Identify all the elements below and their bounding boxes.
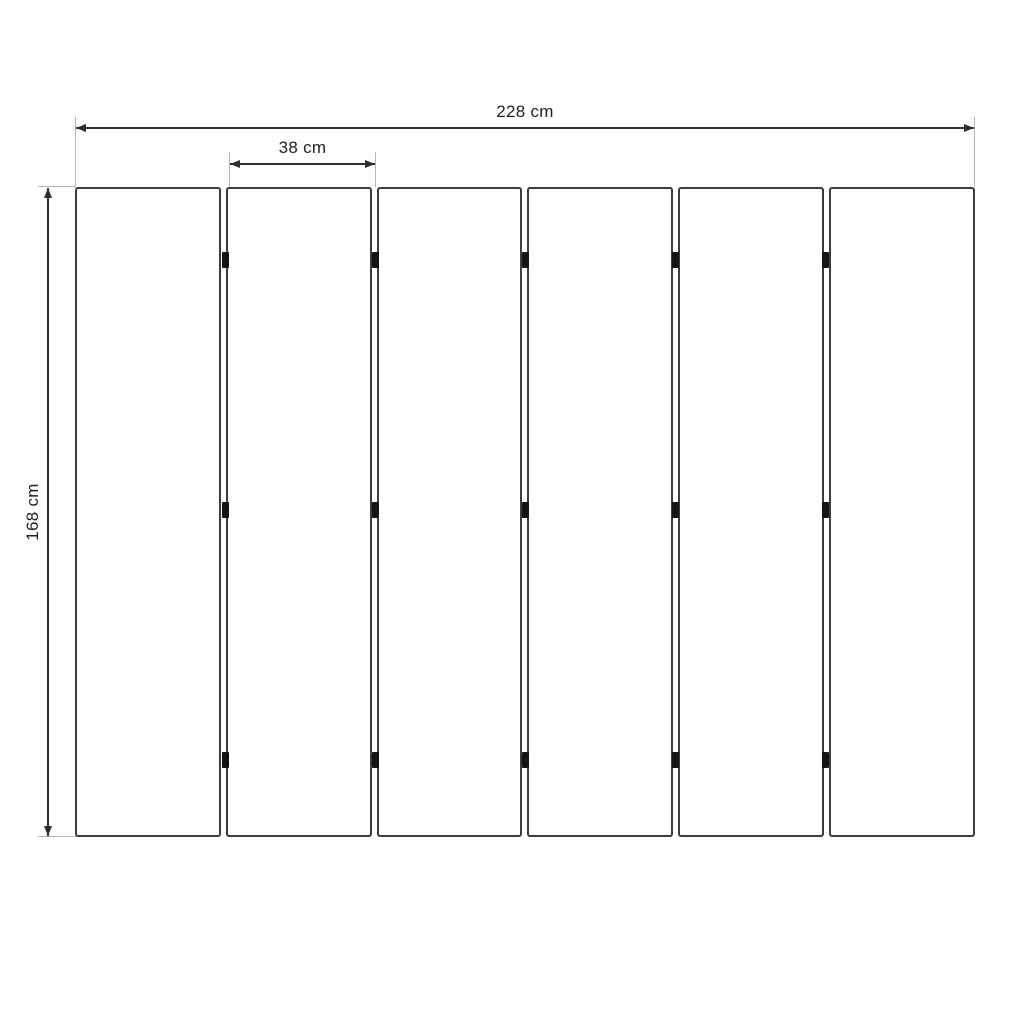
- screen-panel: [377, 187, 523, 837]
- hinge-connector: [672, 502, 679, 518]
- arrowhead-left-icon: [230, 160, 240, 168]
- screen-panel: [75, 187, 221, 837]
- hinge-connector: [822, 502, 829, 518]
- screen-panel: [678, 187, 824, 837]
- screen-panel: [527, 187, 673, 837]
- height-dimension-label-wrap: 168 cm: [10, 187, 56, 837]
- hinge-connector: [372, 752, 379, 768]
- hinge-connector: [672, 252, 679, 268]
- panel-width-dimension-line: [230, 163, 375, 165]
- hinge-connector: [222, 252, 229, 268]
- arrowhead-right-icon: [964, 124, 974, 132]
- hinge-connector: [672, 752, 679, 768]
- arrowhead-up-icon: [44, 188, 52, 198]
- arrowhead-left-icon: [76, 124, 86, 132]
- height-dimension-label: 168 cm: [23, 483, 43, 541]
- hinge-connector: [822, 752, 829, 768]
- screen-panel: [829, 187, 975, 837]
- hinge-connector: [222, 502, 229, 518]
- arrowhead-down-icon: [44, 826, 52, 836]
- total-width-dimension-line: [76, 127, 974, 129]
- panel-dimension-diagram: 228 cm 38 cm 168 cm: [0, 0, 1024, 1024]
- hinge-connector: [822, 252, 829, 268]
- arrowhead-right-icon: [365, 160, 375, 168]
- screen-panel: [226, 187, 372, 837]
- hinge-connector: [372, 252, 379, 268]
- extension-line-total-right: [974, 117, 975, 187]
- hinge-connector: [222, 752, 229, 768]
- total-width-dimension-label: 228 cm: [75, 102, 975, 122]
- hinge-connector: [372, 502, 379, 518]
- height-dimension-line: [47, 188, 49, 836]
- panel-width-dimension-label: 38 cm: [229, 138, 376, 158]
- hinge-connector: [522, 502, 529, 518]
- hinge-connector: [522, 752, 529, 768]
- hinge-connector: [522, 252, 529, 268]
